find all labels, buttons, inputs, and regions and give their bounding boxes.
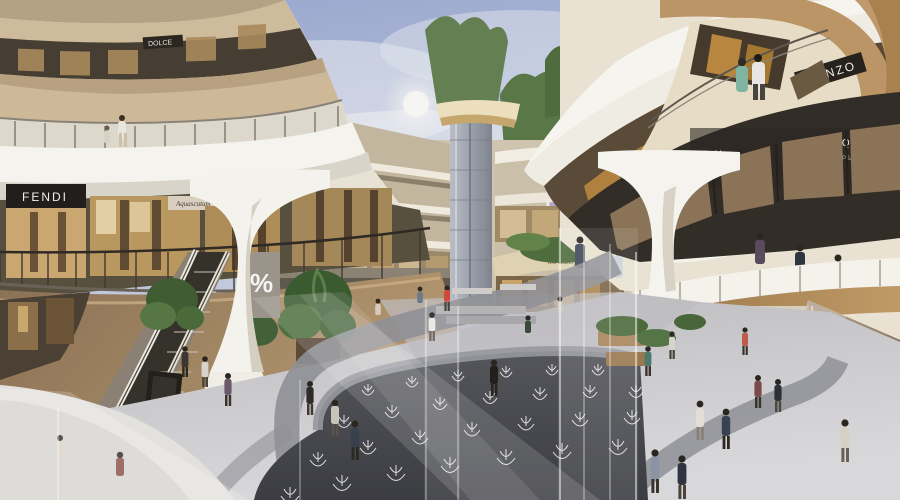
svg-text:%: %: [250, 268, 273, 298]
svg-text:FENDI: FENDI: [22, 190, 68, 204]
